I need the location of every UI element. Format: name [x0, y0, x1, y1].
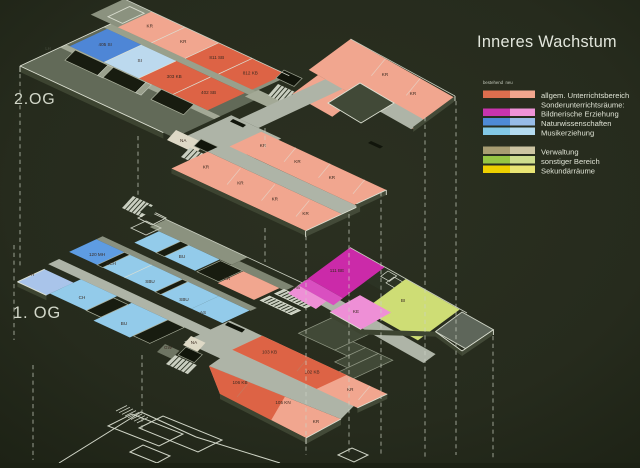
svg-text:KR: KR — [260, 143, 267, 148]
svg-text:2.OG: 2.OG — [14, 91, 55, 108]
svg-text:KR: KR — [329, 175, 336, 180]
svg-text:FIB: FIB — [294, 286, 300, 290]
svg-text:106 KB: 106 KB — [232, 380, 247, 385]
svg-text:KR: KR — [294, 159, 301, 164]
svg-text:KE: KE — [353, 309, 359, 314]
svg-text:CH: CH — [79, 295, 86, 300]
svg-text:811 SB: 811 SB — [209, 55, 224, 60]
svg-text:Inneres Wachstum: Inneres Wachstum — [477, 33, 617, 51]
svg-text:1. OG: 1. OG — [13, 304, 61, 322]
svg-text:KR: KR — [302, 211, 309, 216]
svg-text:402 SB: 402 SB — [201, 90, 216, 95]
svg-text:NA: NA — [180, 138, 187, 143]
svg-text:SBU: SBU — [145, 279, 154, 284]
svg-text:sonstiger Bereich: sonstiger Bereich — [541, 157, 600, 166]
svg-text:FH: FH — [28, 272, 34, 277]
svg-text:KR: KR — [313, 419, 320, 424]
svg-text:102 KB: 102 KB — [305, 369, 320, 374]
svg-text:KR: KR — [180, 39, 187, 44]
svg-text:allgem. Unterrichtsbereich: allgem. Unterrichtsbereich — [541, 91, 629, 100]
svg-text:KR: KR — [410, 91, 417, 96]
svg-text:120 MH: 120 MH — [89, 252, 105, 257]
svg-text:Naturwissenschaften: Naturwissenschaften — [541, 119, 612, 128]
svg-text:105 KN: 105 KN — [275, 400, 290, 405]
svg-text:KR: KR — [237, 181, 244, 186]
svg-text:KR: KR — [272, 197, 279, 202]
svg-text:BU: BU — [121, 321, 127, 326]
svg-text:Sekundärräume: Sekundärräume — [541, 167, 595, 176]
svg-text:103 KB: 103 KB — [262, 350, 277, 355]
svg-text:bestehend neu: bestehend neu — [483, 80, 513, 85]
svg-text:KR: KR — [382, 72, 389, 77]
svg-text:LH: LH — [45, 46, 50, 51]
svg-text:111 BE: 111 BE — [330, 268, 344, 273]
svg-text:AS: AS — [200, 310, 206, 315]
svg-text:GW: GW — [164, 345, 173, 350]
svg-text:Musikerziehung: Musikerziehung — [541, 129, 594, 138]
svg-text:303 KB: 303 KB — [167, 74, 182, 79]
svg-text:BI: BI — [401, 298, 405, 303]
svg-text:Bildnerische Erziehung: Bildnerische Erziehung — [541, 110, 619, 119]
svg-text:BU: BU — [179, 254, 185, 259]
svg-text:KR: KR — [224, 276, 231, 281]
svg-text:Verwaltung: Verwaltung — [541, 148, 579, 157]
svg-text:NA: NA — [191, 340, 198, 345]
svg-text:KR: KR — [347, 387, 354, 392]
svg-text:SI: SI — [138, 58, 142, 63]
svg-text:Sonderunterrichtsräume:: Sonderunterrichtsräume: — [541, 101, 625, 110]
svg-text:KR: KR — [147, 24, 154, 29]
svg-text:SBU: SBU — [179, 297, 188, 302]
svg-text:SCH: SCH — [106, 261, 116, 266]
svg-text:KR: KR — [203, 165, 210, 170]
svg-text:405 SI: 405 SI — [99, 42, 112, 47]
svg-text:812 KB: 812 KB — [243, 70, 258, 75]
